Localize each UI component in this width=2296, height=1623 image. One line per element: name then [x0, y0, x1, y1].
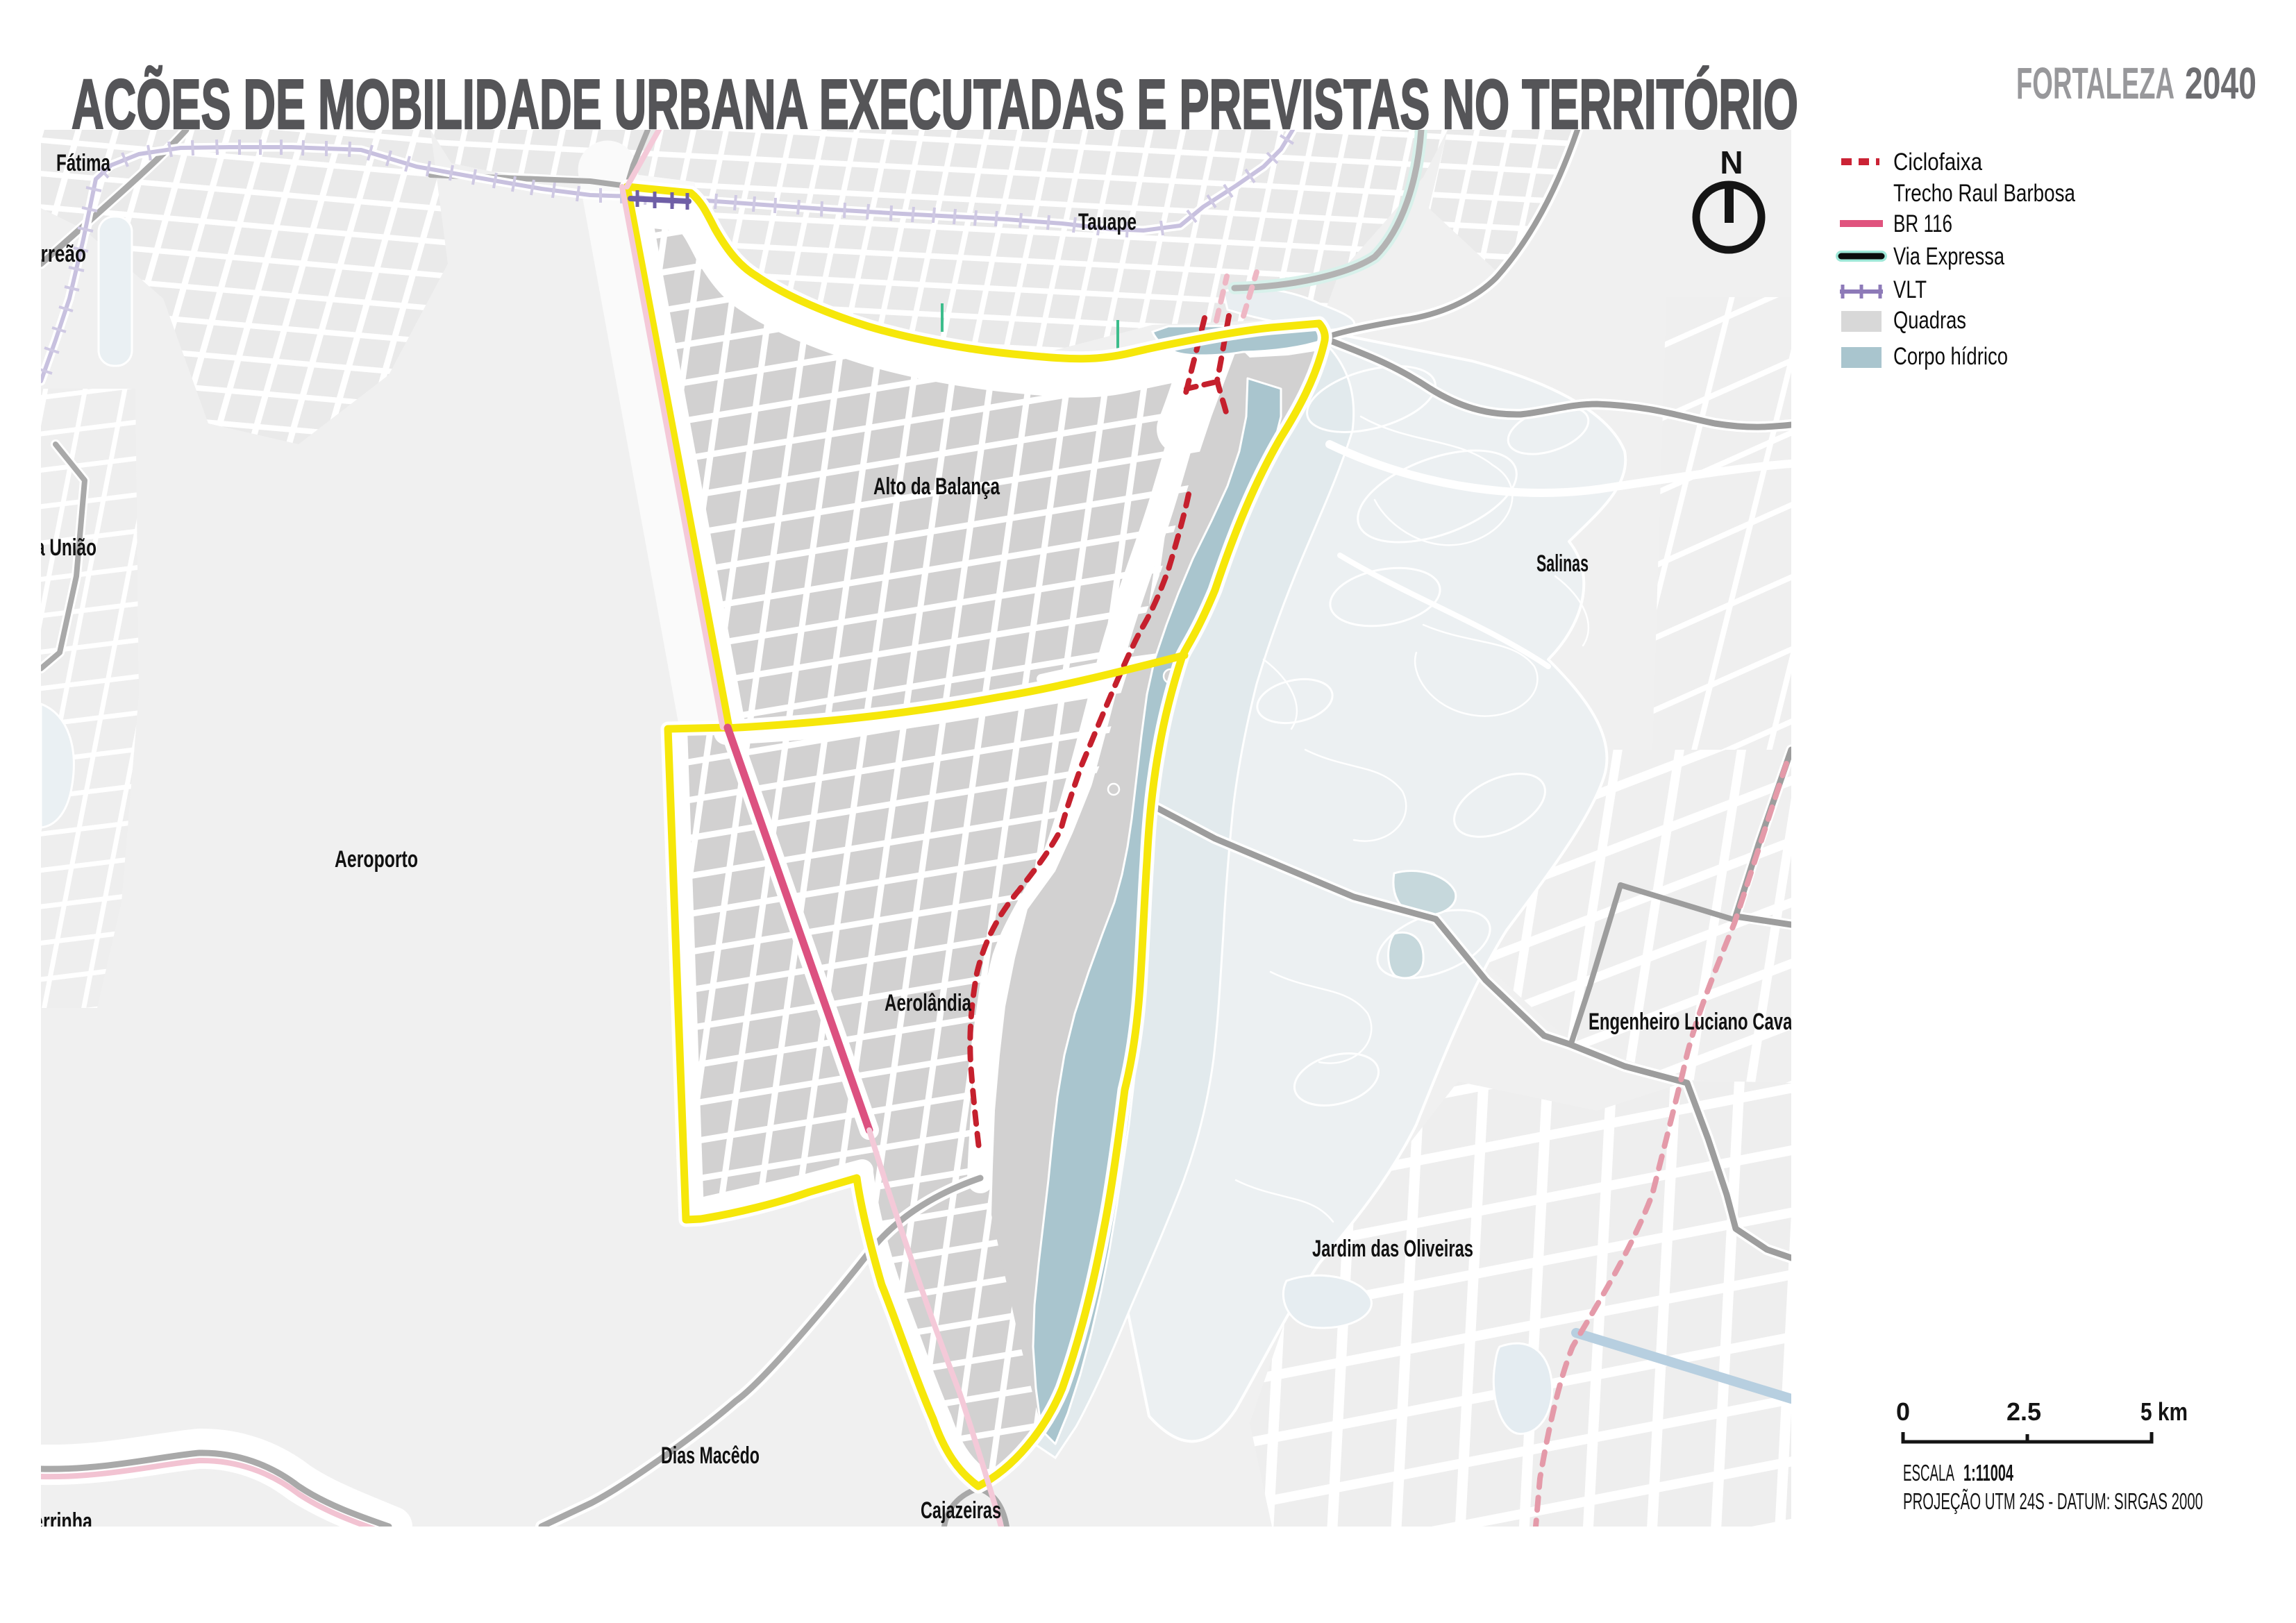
- svg-text:Trecho Raul Barbosa: Trecho Raul Barbosa: [1893, 180, 2075, 207]
- svg-text:Alto da Balança: Alto da Balança: [873, 473, 1000, 500]
- svg-text:FORTALEZA: FORTALEZA: [2016, 58, 2175, 108]
- svg-text:Fátima: Fátima: [56, 150, 111, 176]
- svg-text:N: N: [1720, 144, 1743, 180]
- svg-text:Corpo hídrico: Corpo hídrico: [1893, 343, 2008, 370]
- svg-text:5 km: 5 km: [2140, 1397, 2188, 1426]
- svg-text:BR 116: BR 116: [1893, 210, 1952, 237]
- svg-text:Via Expressa: Via Expressa: [1893, 243, 2004, 270]
- svg-text:Dias Macêdo: Dias Macêdo: [661, 1443, 760, 1469]
- svg-text:a União: a União: [35, 535, 97, 561]
- svg-text:Cajazeiras: Cajazeiras: [921, 1497, 1001, 1524]
- svg-text:VLT: VLT: [1893, 276, 1927, 303]
- svg-text:Ciclofaixa: Ciclofaixa: [1893, 149, 1982, 176]
- svg-text:Jardim das Oliveiras: Jardim das Oliveiras: [1312, 1236, 1473, 1262]
- svg-text:PROJEÇÃO UTM 24S - DATUM: SIRG: PROJEÇÃO UTM 24S - DATUM: SIRGAS 2000: [1903, 1488, 2203, 1514]
- svg-text:Tauape: Tauape: [1078, 209, 1137, 235]
- svg-text:Aerolândia: Aerolândia: [885, 990, 972, 1016]
- svg-text:1:11004: 1:11004: [1963, 1460, 2013, 1486]
- svg-text:Quadras: Quadras: [1893, 307, 1966, 334]
- svg-text:ESCALA: ESCALA: [1903, 1460, 1954, 1486]
- svg-text:2040: 2040: [2185, 58, 2256, 108]
- svg-text:2.5: 2.5: [2006, 1397, 2041, 1426]
- svg-text:Engenheiro Luciano Caval: Engenheiro Luciano Caval: [1589, 1009, 1797, 1035]
- svg-text:Aeroporto: Aeroporto: [335, 846, 418, 873]
- svg-text:0: 0: [1896, 1397, 1910, 1426]
- svg-text:Salinas: Salinas: [1536, 550, 1589, 577]
